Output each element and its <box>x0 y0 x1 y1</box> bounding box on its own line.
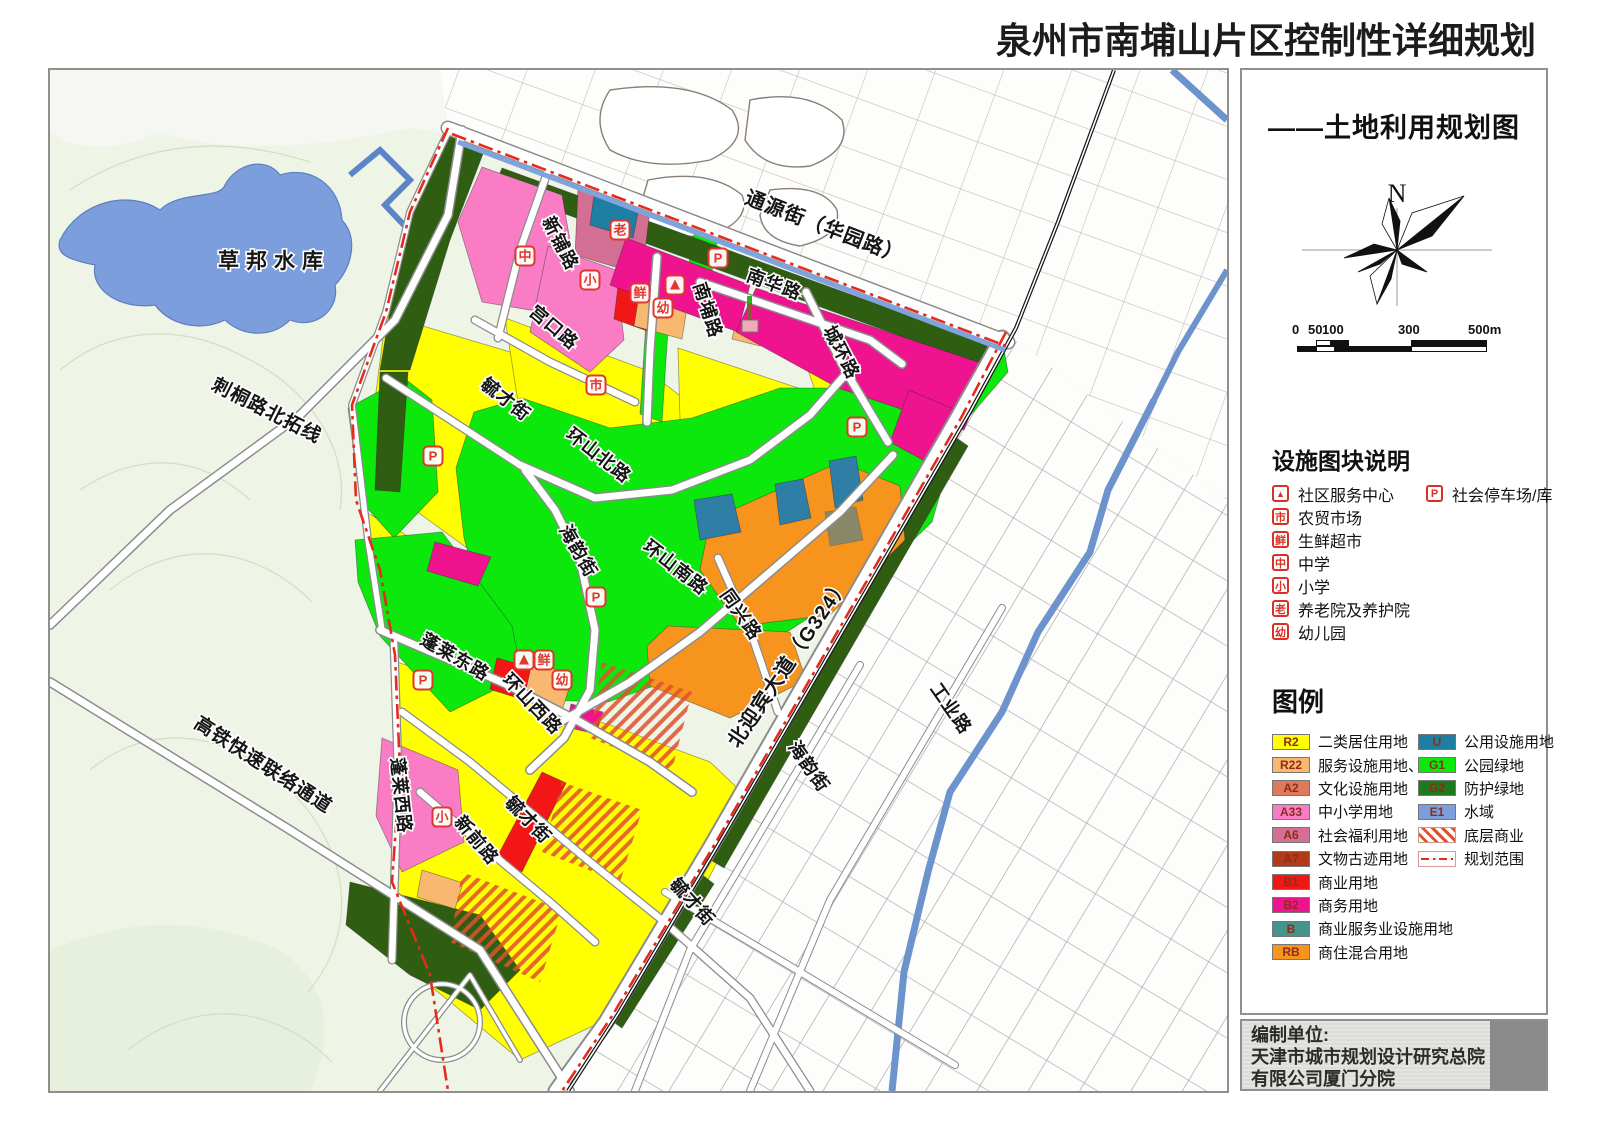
scale-tick-label: 100 <box>1322 322 1344 337</box>
facility-legend-item: 鲜生鲜超市 <box>1272 528 1410 551</box>
landuse-swatch: B2 <box>1272 897 1310 913</box>
landuse-label: 文物古迹用地 <box>1318 848 1408 869</box>
scale-tick-label: 50 <box>1308 322 1322 337</box>
facility-legend-item: 小小学 <box>1272 574 1410 597</box>
landuse-legend-item: 规划范围 <box>1418 847 1554 870</box>
landuse-legend-heading: 图例 <box>1272 682 1324 719</box>
landuse-legend-item: 底层商业 <box>1418 824 1554 847</box>
facility-legend-item: 幼幼儿园 <box>1272 620 1410 643</box>
facility-legend-label: 幼儿园 <box>1298 620 1346 644</box>
facility-marker-▲ <box>666 276 685 295</box>
landuse-label: 规划范围 <box>1464 848 1524 869</box>
map-panel: 中老小鲜幼P市PPP鲜幼P小 草邦水库刺桐路北拓线高铁快速联络通道通源街（华园路… <box>48 68 1229 1093</box>
facility-symbol-icon: 鲜 <box>1272 531 1289 548</box>
landuse-swatch <box>1418 827 1456 843</box>
landuse-label: 防护绿地 <box>1464 778 1524 799</box>
svg-text:幼: 幼 <box>656 301 669 316</box>
landuse-swatch: U <box>1418 734 1456 750</box>
landuse-legend-col2: U公用设施用地G1公园绿地G2防护绿地E1水域底层商业规划范围 <box>1418 730 1554 870</box>
svg-text:P: P <box>853 420 862 435</box>
facility-symbol-icon: 中 <box>1272 554 1289 571</box>
facility-marker-鲜: 鲜 <box>535 651 554 670</box>
facility-symbol-icon: P <box>1426 485 1443 502</box>
facility-legend-item: 市农贸市场 <box>1272 505 1410 528</box>
landuse-swatch: G2 <box>1418 780 1456 796</box>
facility-marker-市: 市 <box>587 376 606 395</box>
facility-legend-label: 中学 <box>1298 551 1330 575</box>
svg-text:市: 市 <box>589 378 602 393</box>
facility-marker-P: P <box>709 249 728 268</box>
facility-marker-P: P <box>414 671 433 690</box>
landuse-swatch: A33 <box>1272 804 1310 820</box>
facility-legend-item: P社会停车场/库 <box>1426 482 1552 505</box>
landuse-label: 商务用地 <box>1318 895 1378 916</box>
facility-legend-label: 养老院及养护院 <box>1298 597 1410 621</box>
scale-tick-label: 0 <box>1292 322 1299 337</box>
svg-text:P: P <box>429 449 438 464</box>
landuse-label: 服务设施用地、 <box>1318 755 1423 776</box>
landuse-legend-item: E1水域 <box>1418 800 1554 823</box>
landuse-swatch: A7 <box>1272 851 1310 867</box>
landuse-label: 底层商业 <box>1464 825 1524 846</box>
facility-marker-老: 老 <box>611 221 630 240</box>
landuse-legend-item: B2商务用地 <box>1272 894 1453 917</box>
landuse-label: 公园绿地 <box>1464 755 1524 776</box>
scale-tick-label: 300 <box>1398 322 1420 337</box>
facility-marker-中: 中 <box>516 247 535 266</box>
landuse-swatch: B1 <box>1272 874 1310 890</box>
page-title: 泉州市南埔山片区控制性详细规划 <box>996 12 1536 64</box>
facility-marker-幼: 幼 <box>553 671 572 690</box>
scale-tick-label: 500m <box>1468 322 1501 337</box>
svg-text:小: 小 <box>583 273 596 288</box>
landuse-swatch: E1 <box>1418 804 1456 820</box>
landuse-legend-item: RB商住混合用地 <box>1272 941 1453 964</box>
svg-text:鲜: 鲜 <box>633 286 646 301</box>
svg-text:P: P <box>592 590 601 605</box>
landuse-label: 商住混合用地 <box>1318 942 1408 963</box>
landuse-label: 公用设施用地 <box>1464 731 1554 752</box>
facility-symbol-icon: 幼 <box>1272 623 1289 640</box>
landuse-swatch: A6 <box>1272 827 1310 843</box>
facility-legend-label: 社会停车场/库 <box>1452 482 1552 506</box>
landuse-label: 二类居住用地 <box>1318 731 1408 752</box>
legend-panel: ——土地利用规划图 N 050100300500m 设施图块说明 ▲社区服务中心… <box>1240 68 1548 1015</box>
landuse-label: 商业服务业设施用地 <box>1318 918 1453 939</box>
landuse-swatch: R22 <box>1272 757 1310 773</box>
facility-legend-item: 中中学 <box>1272 551 1410 574</box>
planning-map-canvas: 中老小鲜幼P市PPP鲜幼P小 草邦水库刺桐路北拓线高铁快速联络通道通源街（华园路… <box>50 70 1227 1091</box>
landuse-swatch: R2 <box>1272 734 1310 750</box>
community-center-icon: ▲ <box>1272 485 1289 502</box>
svg-text:P: P <box>714 251 723 266</box>
landuse-label: 文化设施用地 <box>1318 778 1408 799</box>
facility-marker-P: P <box>424 447 443 466</box>
landuse-label: 商业用地 <box>1318 872 1378 893</box>
facility-legend-label: 农贸市场 <box>1298 505 1362 529</box>
svg-text:幼: 幼 <box>555 673 568 688</box>
planning-document-page: { "page": { "title": "泉州市南埔山片区控制性详细规划", … <box>0 0 1600 1130</box>
svg-text:P: P <box>419 673 428 688</box>
facility-legend-heading: 设施图块说明 <box>1272 442 1410 476</box>
facility-marker-小: 小 <box>433 808 452 827</box>
landuse-swatch <box>1418 851 1456 867</box>
svg-text:小: 小 <box>435 810 448 825</box>
facility-marker-▲ <box>515 651 534 670</box>
facility-marker-P: P <box>848 418 867 437</box>
facility-marker-小: 小 <box>581 271 600 290</box>
facility-symbol-icon: 市 <box>1272 508 1289 525</box>
svg-text:中: 中 <box>518 249 531 264</box>
landuse-legend-item: B商业服务业设施用地 <box>1272 917 1453 940</box>
landuse-swatch: RB <box>1272 944 1310 960</box>
landuse-label: 水域 <box>1464 801 1494 822</box>
facility-legend-col2: P社会停车场/库 <box>1426 482 1552 505</box>
svg-text:鲜: 鲜 <box>537 653 550 668</box>
landuse-swatch: A2 <box>1272 780 1310 796</box>
map-subtitle: ——土地利用规划图 <box>1242 106 1546 145</box>
landuse-swatch: B <box>1272 921 1310 937</box>
north-arrow: N <box>1292 178 1502 313</box>
landuse-legend-item: B1商业用地 <box>1272 870 1453 893</box>
facility-marker-P: P <box>587 588 606 607</box>
facility-symbol-icon: 小 <box>1272 577 1289 594</box>
landuse-swatch: G1 <box>1418 757 1456 773</box>
facility-marker-鲜: 鲜 <box>631 284 650 303</box>
facility-symbol-icon: 老 <box>1272 600 1289 617</box>
landuse-label: 社会福利用地 <box>1318 825 1408 846</box>
landuse-legend-item: G1公园绿地 <box>1418 753 1554 776</box>
facility-legend-label: 小学 <box>1298 574 1330 598</box>
facility-legend-item: ▲社区服务中心 <box>1272 482 1410 505</box>
landuse-legend-item: G2防护绿地 <box>1418 777 1554 800</box>
road-label: 草邦水库 <box>218 249 330 273</box>
landuse-legend-item: U公用设施用地 <box>1418 730 1554 753</box>
landuse-label: 中小学用地 <box>1318 801 1393 822</box>
facility-legend-col1: ▲社区服务中心市农贸市场鲜生鲜超市中中学小小学老养老院及养护院幼幼儿园 <box>1272 482 1410 643</box>
facility-marker-幼: 幼 <box>654 299 673 318</box>
facility-legend-label: 生鲜超市 <box>1298 528 1362 552</box>
facility-legend-item: 老养老院及养护院 <box>1272 597 1410 620</box>
attribution-color-block <box>1490 1021 1546 1089</box>
facility-legend-label: 社区服务中心 <box>1298 482 1394 506</box>
svg-text:老: 老 <box>612 223 626 238</box>
attribution-box: 编制单位: 天津市城市规划设计研究总院 有限公司厦门分院 <box>1240 1019 1548 1091</box>
